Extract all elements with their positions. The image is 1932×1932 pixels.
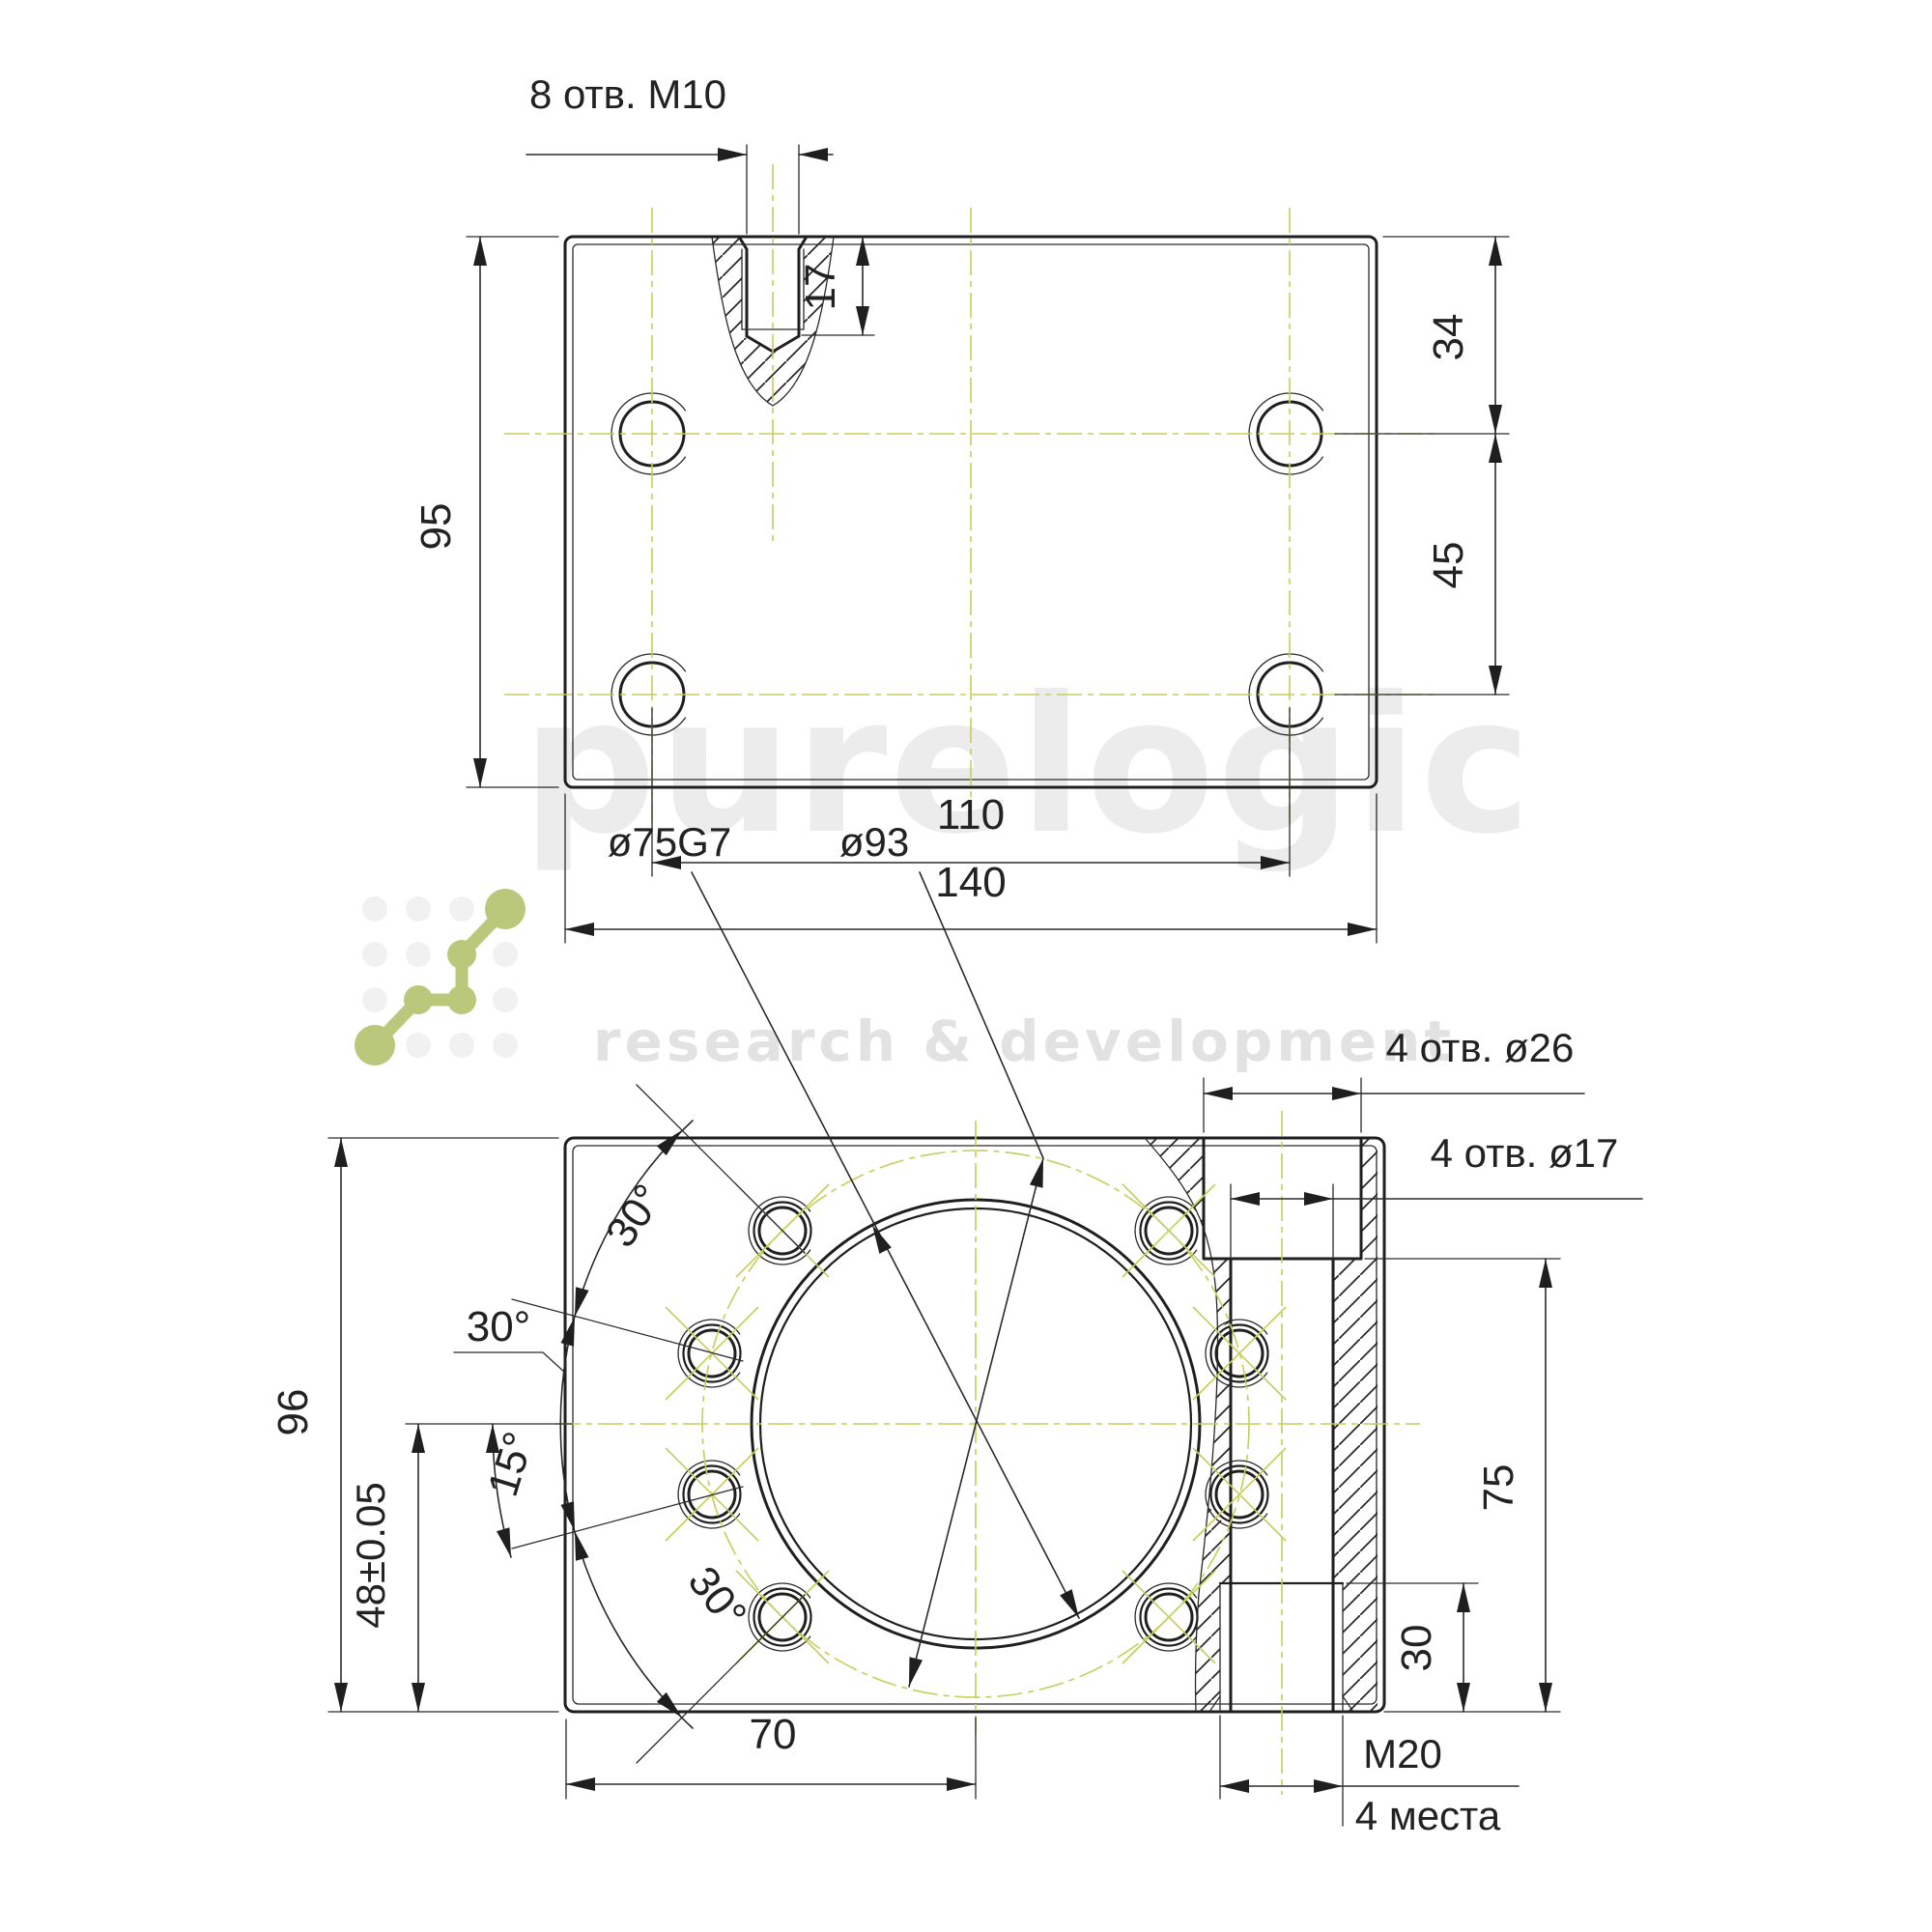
dim-140-label: 140: [935, 859, 1006, 906]
dim-center-70: 70: [566, 1711, 976, 1799]
dim-48-label: 48±0.05: [348, 1482, 393, 1629]
front-view: [555, 1111, 1420, 1795]
dim-96-label: 96: [270, 1389, 317, 1436]
dim-m20-places-label: 4 места: [1355, 1793, 1501, 1838]
front-view-dimensions: ø75G7 ø93 4 отв. ø26 4 отв. ø17: [270, 819, 1642, 1838]
dim-45-label: 45: [1425, 542, 1472, 589]
angle-30-leader-label: 30°: [467, 1303, 531, 1350]
dim-93-label: ø93: [839, 819, 909, 865]
dim-110-label: 110: [937, 791, 1005, 838]
dim-center-48: 48±0.05: [348, 1424, 572, 1712]
dim-70-label: 70: [750, 1711, 797, 1758]
m10-section-hatch: [705, 232, 845, 420]
angle-15-label: 15°: [479, 1427, 543, 1502]
watermark-tagline-text: research & development: [593, 1009, 1455, 1074]
dim-holes-note: 8 отв. M10: [526, 71, 833, 234]
engineering-drawing: purelogic research & development: [0, 0, 1932, 1932]
purelogic-logo-icon: [355, 889, 526, 1065]
dim-34-45: 34 45: [1335, 237, 1509, 695]
dim-17-label: 17: [797, 264, 844, 311]
dim-75g7-label: ø75G7: [608, 819, 731, 865]
dim-bolt-circle-93: ø93: [839, 819, 1050, 1689]
dim-75-label: 75: [1475, 1464, 1522, 1512]
angle-30-top-label: 30°: [597, 1176, 672, 1256]
dim-34-label: 34: [1425, 314, 1472, 361]
dim-m20-label: M20: [1363, 1731, 1442, 1776]
dim-4x17-label: 4 отв. ø17: [1431, 1130, 1619, 1176]
dim-30-label: 30: [1393, 1625, 1440, 1672]
dim-m20: M20 4 места: [1220, 1716, 1519, 1838]
dim-8-holes-m10-label: 8 отв. M10: [529, 71, 726, 117]
dim-height-96: 96: [270, 1138, 558, 1712]
dim-4x26-label: 4 отв. ø26: [1386, 1025, 1575, 1070]
dim-95-label: 95: [412, 503, 460, 551]
